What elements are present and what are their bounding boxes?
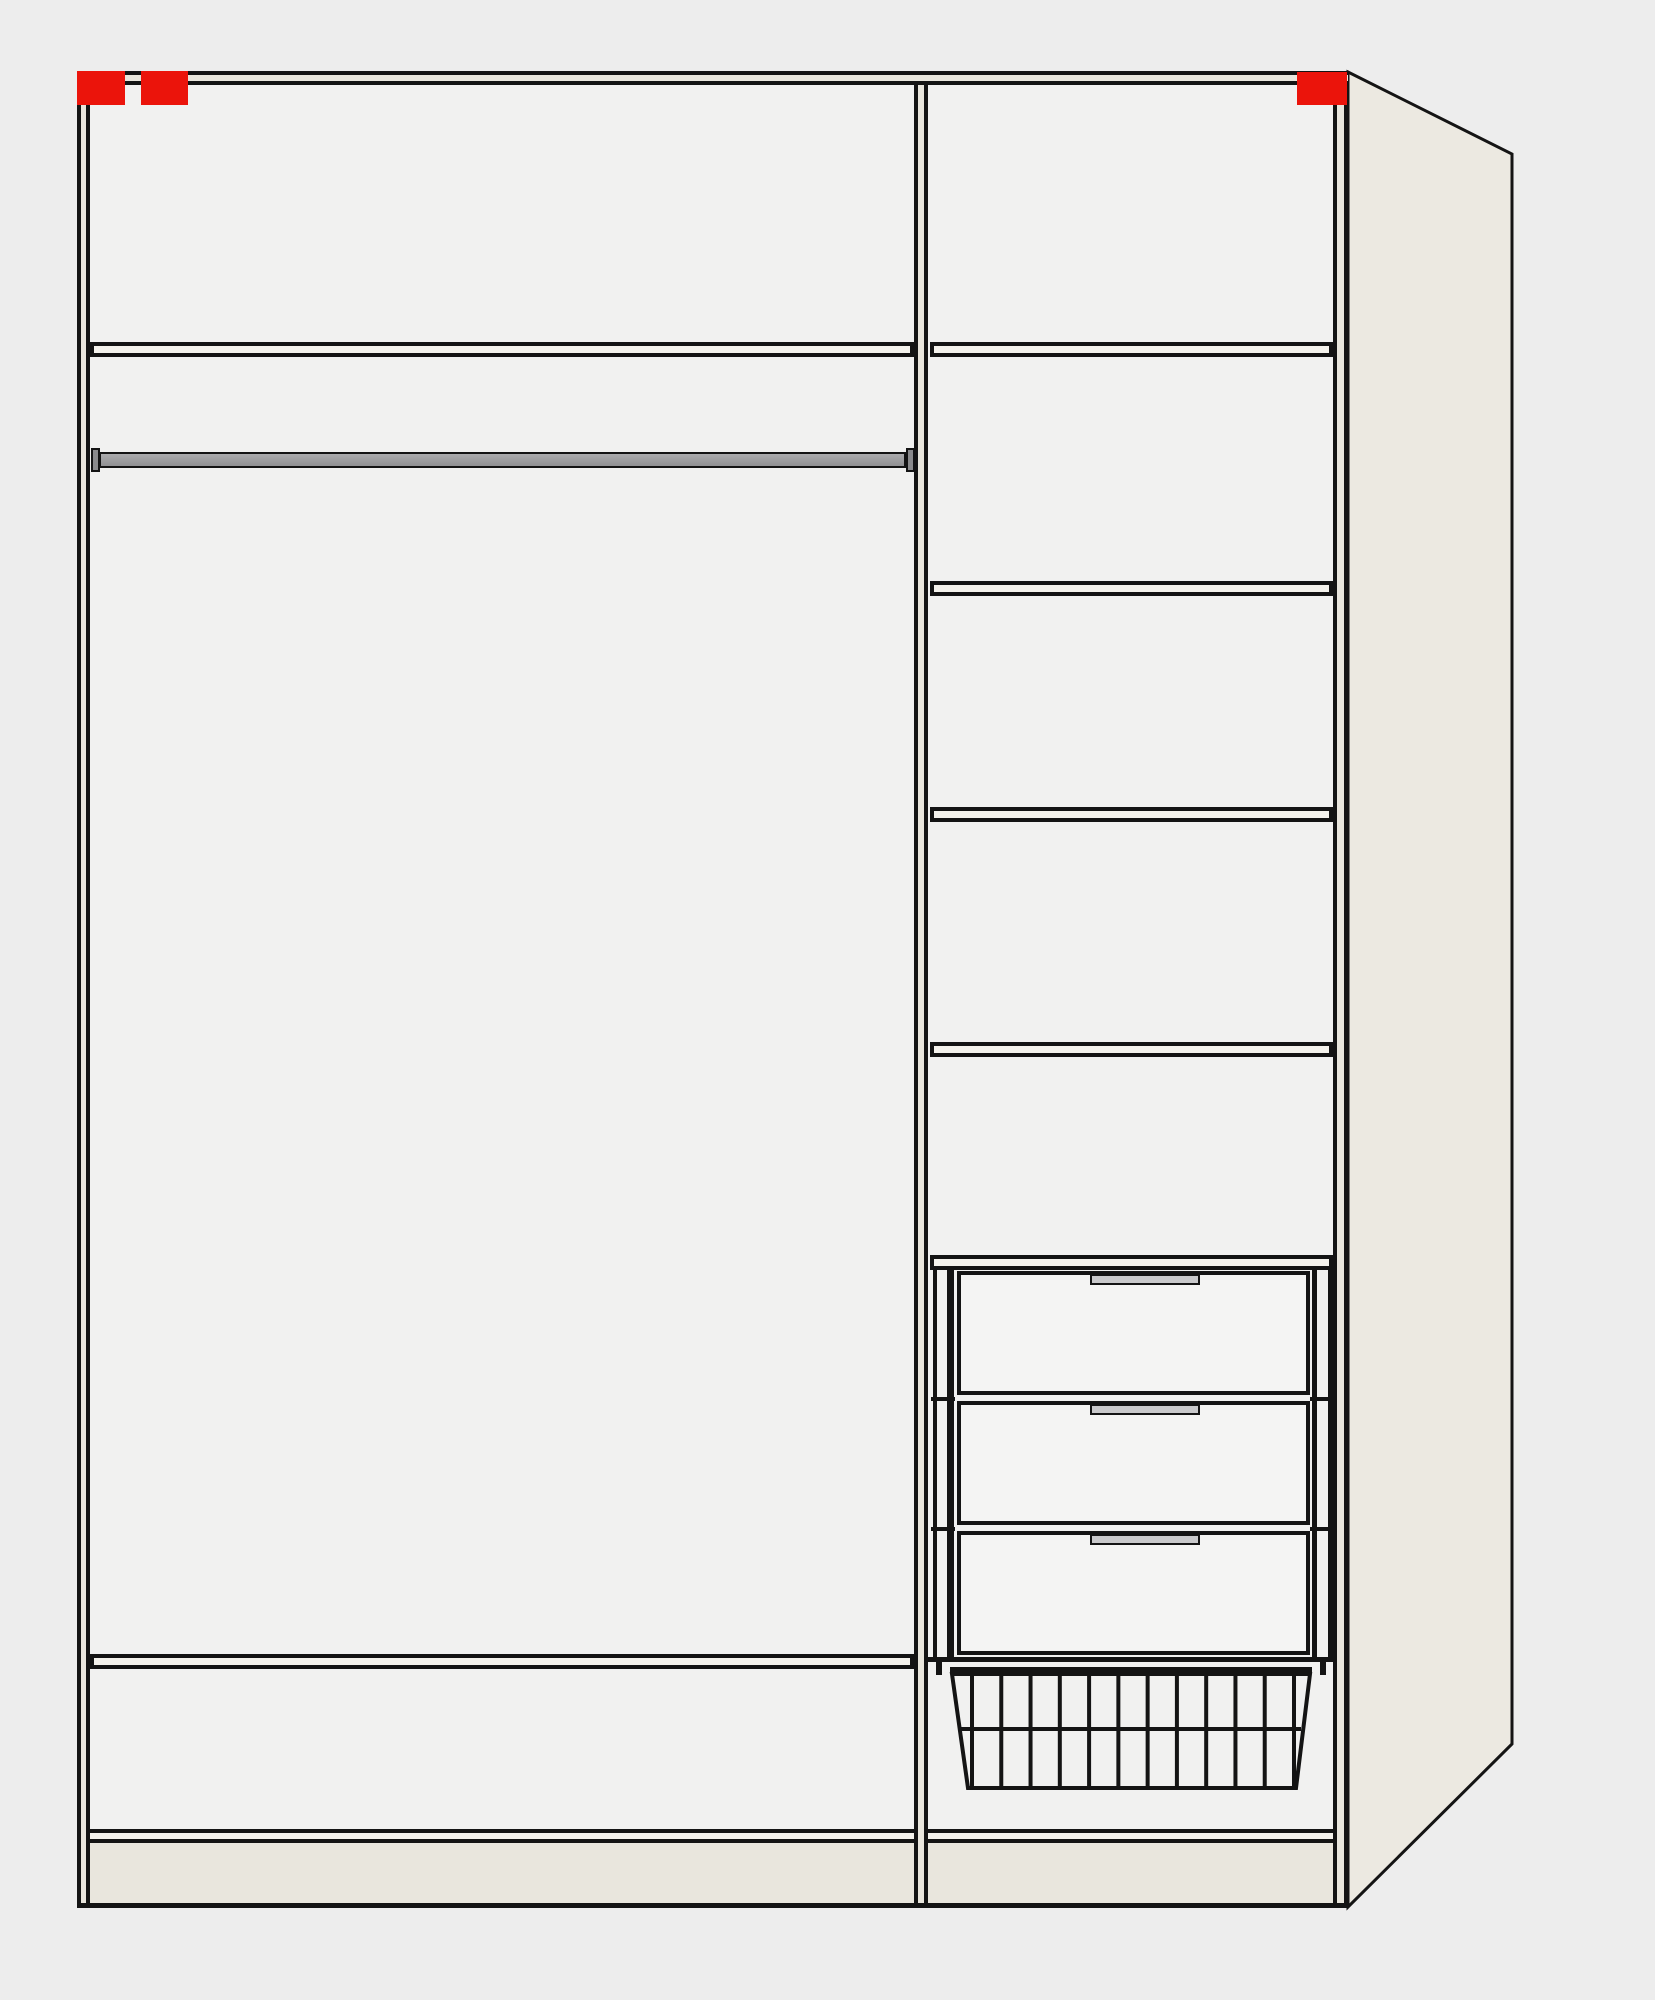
drawer-unit-rail-left-outer	[933, 1269, 937, 1662]
drawer-unit-rail-right-inner	[1312, 1269, 1317, 1662]
drawer-handle	[1090, 1534, 1200, 1545]
carcass-right-edge	[1333, 71, 1348, 1908]
shelf	[930, 581, 1333, 596]
carcass-top-edge	[77, 71, 1348, 85]
drawer-rail-tick	[1310, 1527, 1334, 1531]
side-panel-svg	[1333, 65, 1523, 1915]
shelf	[90, 342, 914, 357]
shelf	[930, 342, 1333, 357]
shelf	[930, 1042, 1333, 1057]
wardrobe-diagram-canvas	[0, 0, 1655, 2000]
red-marker-top-right	[1297, 72, 1347, 105]
red-marker-top-left-a	[77, 71, 125, 105]
side-panel	[1348, 72, 1512, 1907]
basket-hook-left	[936, 1658, 942, 1675]
drawer-rail-tick	[1310, 1397, 1334, 1401]
carcass-left-edge	[77, 71, 90, 1908]
red-marker-top-left-b	[141, 71, 188, 105]
basket-hook-right	[1320, 1658, 1326, 1675]
drawer-handle	[1090, 1404, 1200, 1415]
center-divider	[914, 71, 928, 1908]
drawer-front	[957, 1531, 1310, 1655]
shelf	[930, 1255, 1333, 1270]
clothes-rail	[99, 452, 906, 468]
drawer-unit-rail-left-inner	[947, 1269, 954, 1662]
drawer-front	[957, 1271, 1310, 1395]
bottom-shelf	[84, 1829, 1340, 1843]
drawer-front	[957, 1401, 1310, 1525]
carcass-bottom-edge	[77, 1903, 1348, 1908]
drawer-rail-tick	[931, 1397, 955, 1401]
drawer-handle	[1090, 1274, 1200, 1285]
wire-basket-svg	[928, 1650, 1334, 1800]
clothes-rail-end-cap-left	[91, 448, 100, 472]
shelf	[930, 807, 1333, 822]
plinth-panel	[81, 1843, 1344, 1903]
shelf	[90, 1654, 914, 1669]
drawer-rail-tick	[931, 1527, 955, 1531]
